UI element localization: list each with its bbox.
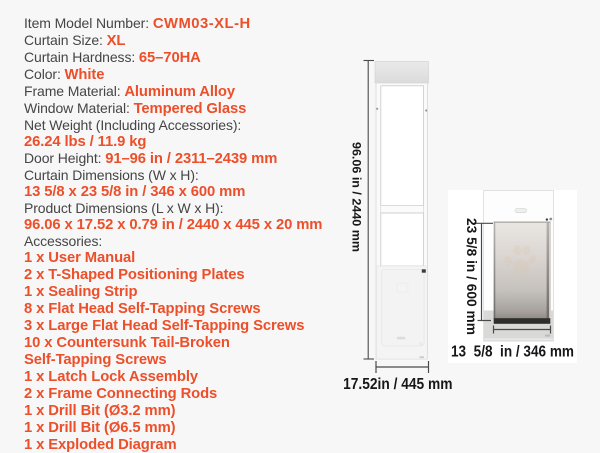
svg-text:13 5/8 in / 346 mm: 13 5/8 in / 346 mm: [451, 343, 574, 360]
svg-text:23 5/8 in / 600 mm: 23 5/8 in / 600 mm: [464, 218, 479, 335]
svg-text:96.06 in / 2440 mm: 96.06 in / 2440 mm: [350, 142, 364, 252]
svg-text:17.52in / 445 mm: 17.52in / 445 mm: [343, 376, 452, 393]
